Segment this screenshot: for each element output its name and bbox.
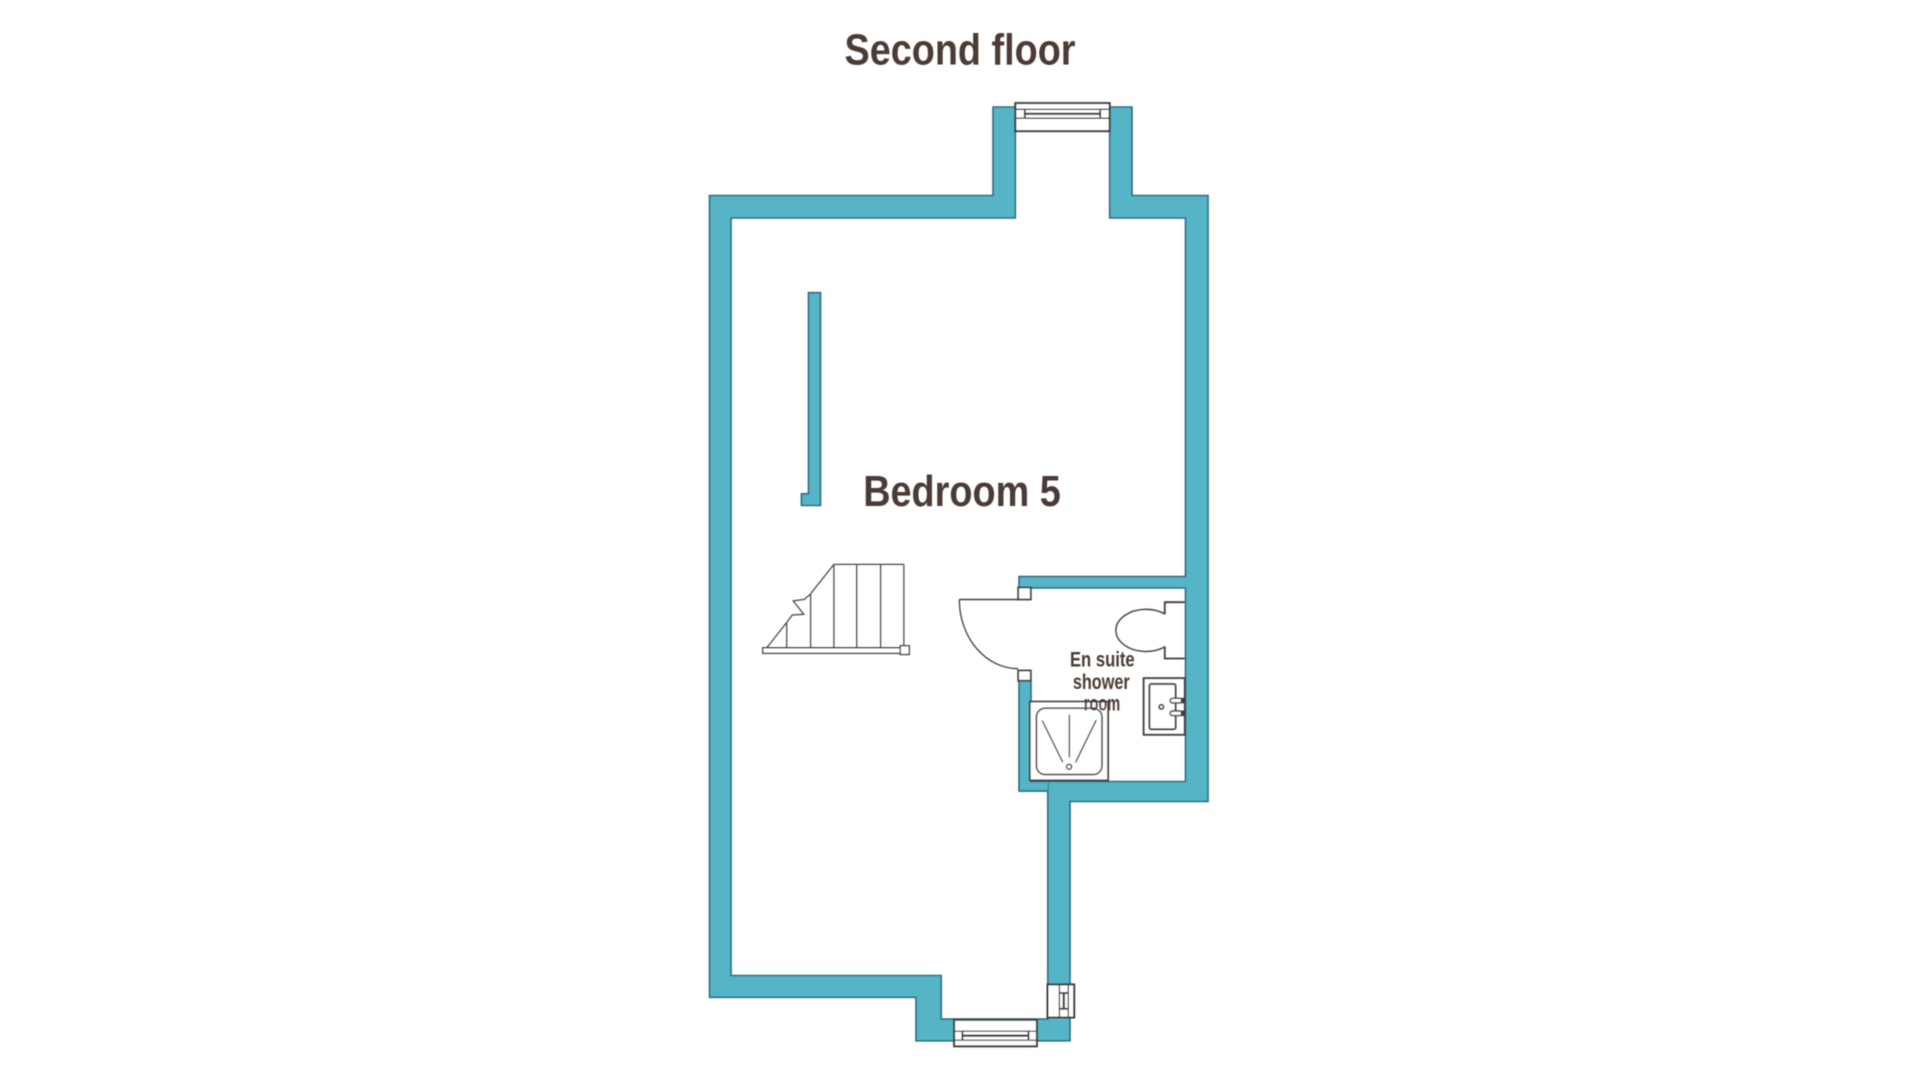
svg-text:room: room	[1084, 692, 1120, 716]
svg-text:Second floor: Second floor	[845, 26, 1076, 75]
svg-text:En suite: En suite	[1070, 648, 1135, 672]
svg-text:Bedroom 5: Bedroom 5	[863, 467, 1061, 516]
